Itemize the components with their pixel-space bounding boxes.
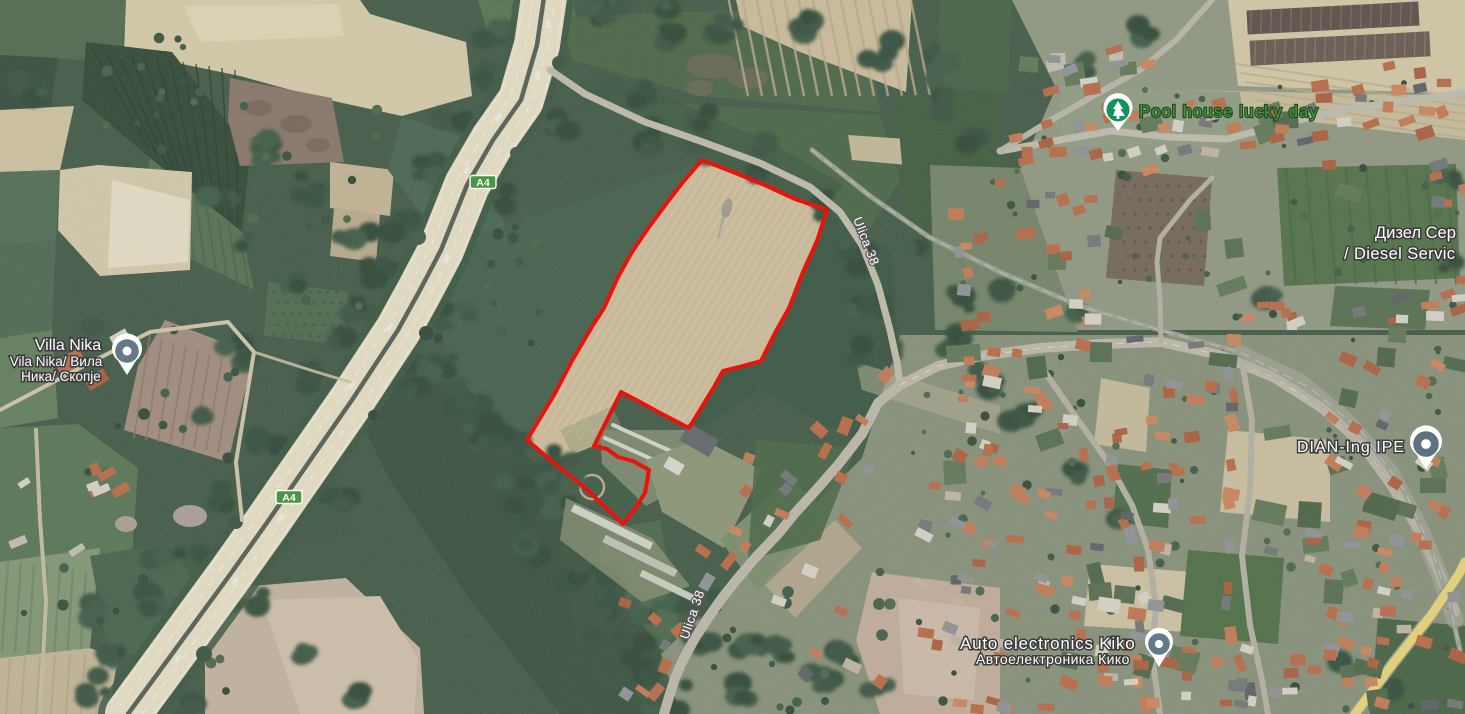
svg-text:Vila Nika/ Вила: Vila Nika/ Вила xyxy=(10,354,103,369)
svg-text:A4: A4 xyxy=(476,177,490,189)
svg-text:DIAN-Ing IPE: DIAN-Ing IPE xyxy=(1297,439,1405,456)
svg-text:/ Diesel Servic: / Diesel Servic xyxy=(1344,245,1455,263)
svg-text:A4: A4 xyxy=(282,492,296,504)
svg-text:Pool house lucky day: Pool house lucky day xyxy=(1139,103,1319,121)
svg-text:Дизел Сер: Дизел Сер xyxy=(1375,224,1456,242)
svg-text:Автоелектроника Кико: Автоелектроника Кико xyxy=(976,651,1130,667)
svg-text:Ника/ Скопје: Ника/ Скопје xyxy=(21,369,101,384)
svg-text:Villa Nika: Villa Nika xyxy=(35,337,102,354)
